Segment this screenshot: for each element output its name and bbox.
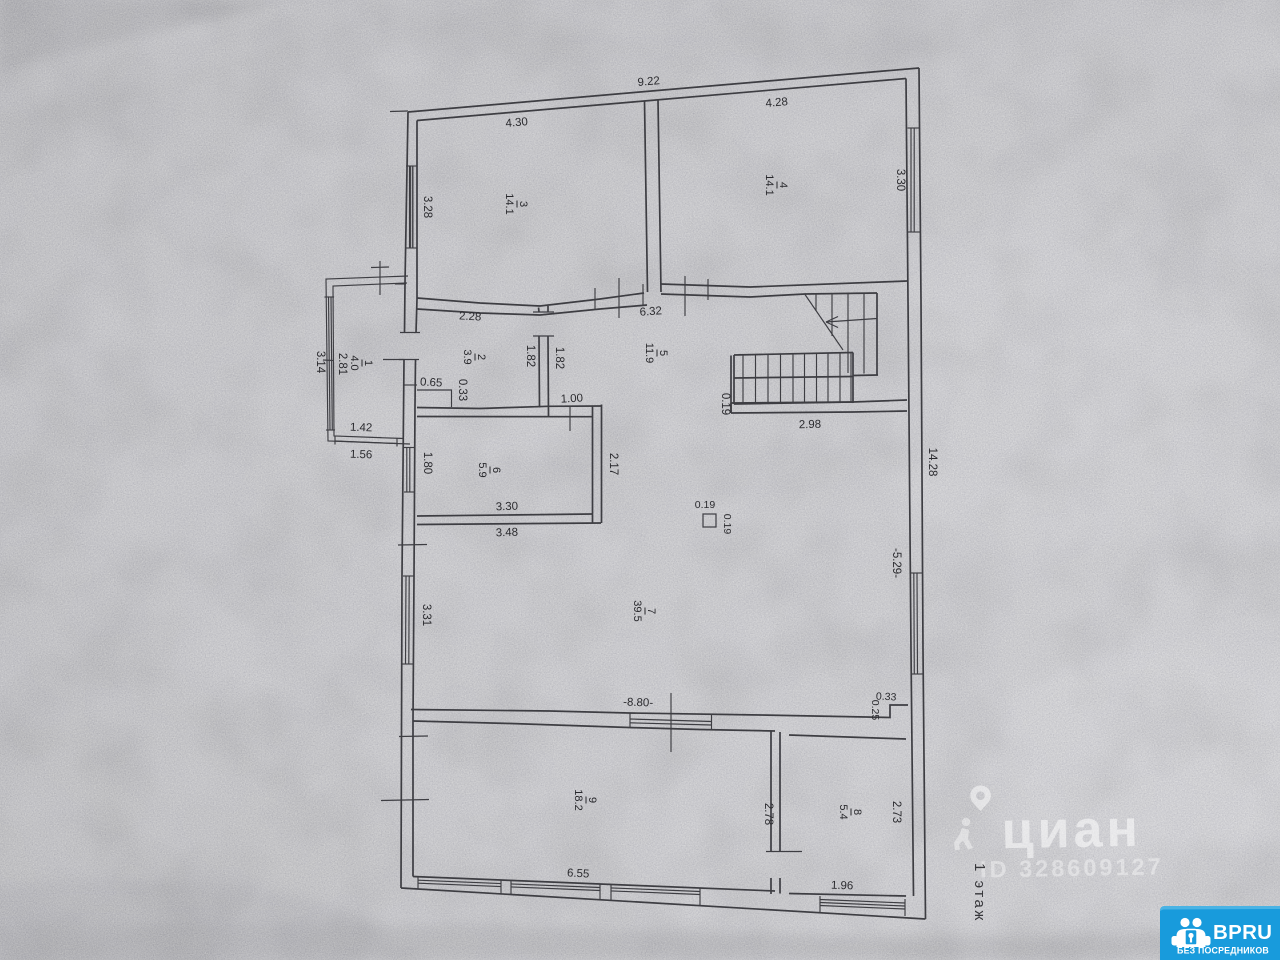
- svg-text:3: 3: [517, 201, 529, 207]
- svg-text:3.30: 3.30: [495, 501, 518, 514]
- svg-text:6.32: 6.32: [639, 305, 662, 319]
- svg-text:BPRU: BPRU: [1213, 921, 1272, 944]
- svg-text:3.31: 3.31: [420, 604, 432, 626]
- svg-text:2.17: 2.17: [607, 453, 619, 475]
- svg-text:2.81: 2.81: [336, 353, 348, 375]
- svg-text:14.1: 14.1: [763, 174, 775, 195]
- svg-text:циан: циан: [1001, 800, 1142, 860]
- svg-text:1.96: 1.96: [831, 880, 854, 893]
- svg-text:3.30: 3.30: [894, 169, 906, 191]
- svg-text:1: 1: [362, 360, 374, 366]
- svg-text:39.5: 39.5: [631, 600, 643, 621]
- svg-text:5.4: 5.4: [837, 804, 849, 819]
- svg-text:ID 328609127: ID 328609127: [980, 853, 1164, 882]
- svg-text:2.73: 2.73: [890, 801, 902, 823]
- svg-text:-5.29-: -5.29-: [890, 548, 902, 578]
- svg-text:0.65: 0.65: [420, 376, 443, 389]
- svg-text:2.78: 2.78: [762, 803, 774, 825]
- svg-text:14.1: 14.1: [503, 193, 515, 214]
- svg-text:1.00: 1.00: [560, 392, 583, 405]
- svg-text:2.28: 2.28: [459, 310, 482, 323]
- svg-text:5: 5: [657, 350, 669, 356]
- svg-text:3.9: 3.9: [461, 349, 473, 364]
- svg-text:4.30: 4.30: [505, 116, 528, 130]
- svg-text:3.14: 3.14: [314, 351, 326, 374]
- svg-text:4.28: 4.28: [765, 96, 788, 110]
- svg-text:7: 7: [645, 608, 657, 614]
- svg-text:18.2: 18.2: [572, 789, 584, 810]
- svg-text:9: 9: [586, 797, 598, 803]
- svg-text:1.42: 1.42: [350, 422, 373, 435]
- svg-text:9.22: 9.22: [637, 75, 660, 89]
- svg-text:11.9: 11.9: [643, 343, 655, 364]
- svg-text:14.28: 14.28: [926, 448, 938, 477]
- svg-text:БЕЗ ПОСРЕДНИКОВ: БЕЗ ПОСРЕДНИКОВ: [1177, 946, 1269, 956]
- svg-text:1.80: 1.80: [421, 452, 433, 474]
- svg-text:6: 6: [490, 467, 502, 473]
- svg-text:2.98: 2.98: [799, 419, 822, 431]
- svg-text:3.48: 3.48: [495, 527, 518, 540]
- svg-text:8: 8: [851, 809, 863, 815]
- svg-text:0.19: 0.19: [695, 499, 716, 511]
- svg-text:1 этаж: 1 этаж: [971, 863, 988, 923]
- svg-text:0.33: 0.33: [456, 379, 468, 401]
- svg-text:-8.80-: -8.80-: [623, 696, 654, 709]
- svg-text:4: 4: [777, 182, 789, 188]
- svg-text:0.19: 0.19: [719, 393, 731, 415]
- svg-text:4.0: 4.0: [348, 355, 360, 370]
- svg-text:5.9: 5.9: [476, 462, 488, 477]
- svg-text:1.82: 1.82: [553, 347, 565, 369]
- svg-text:3.28: 3.28: [421, 196, 433, 218]
- svg-text:0.25: 0.25: [869, 700, 881, 721]
- svg-text:6.55: 6.55: [567, 867, 590, 880]
- svg-text:1.56: 1.56: [350, 449, 373, 462]
- svg-text:0.19: 0.19: [721, 514, 733, 535]
- svg-text:1.82: 1.82: [524, 345, 536, 367]
- svg-text:2: 2: [475, 354, 487, 360]
